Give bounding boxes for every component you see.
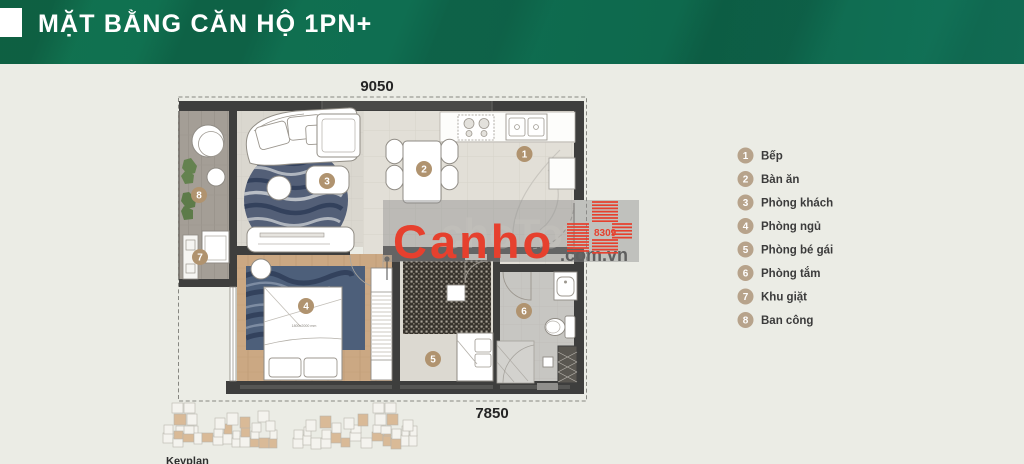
svg-text:7: 7	[743, 292, 749, 303]
svg-text:Ban công: Ban công	[761, 315, 813, 327]
svg-text:5: 5	[430, 355, 436, 366]
svg-text:Khu giặt: Khu giặt	[761, 292, 807, 304]
svg-text:8: 8	[196, 191, 202, 202]
svg-text:5: 5	[743, 245, 749, 256]
svg-text:8309: 8309	[594, 228, 617, 239]
svg-text:7: 7	[197, 253, 203, 264]
svg-text:1: 1	[743, 151, 749, 162]
svg-text:2: 2	[421, 165, 427, 176]
svg-text:Canho: Canho	[393, 215, 554, 268]
svg-text:6: 6	[521, 307, 527, 318]
svg-text:4: 4	[303, 302, 309, 313]
svg-text:7850: 7850	[475, 405, 508, 422]
svg-text:1: 1	[522, 150, 528, 161]
svg-text:6: 6	[743, 269, 749, 280]
svg-text:Phòng tắm: Phòng tắm	[761, 267, 820, 280]
svg-text:Keyplan: Keyplan	[166, 456, 209, 464]
svg-text:1800x2000 mm: 1800x2000 mm	[292, 324, 317, 328]
svg-text:Bếp: Bếp	[761, 151, 783, 163]
svg-text:2: 2	[743, 175, 749, 186]
svg-text:Phòng ngủ: Phòng ngủ	[761, 221, 821, 233]
svg-text:3: 3	[743, 198, 749, 209]
svg-text:Bàn ăn: Bàn ăn	[761, 174, 799, 186]
svg-text:3: 3	[324, 177, 330, 188]
svg-text:Phòng bé gái: Phòng bé gái	[761, 245, 833, 257]
svg-text:Phòng khách: Phòng khách	[761, 198, 833, 210]
svg-text:4: 4	[743, 222, 749, 233]
svg-text:8: 8	[743, 316, 749, 327]
svg-text:9050: 9050	[360, 78, 393, 95]
